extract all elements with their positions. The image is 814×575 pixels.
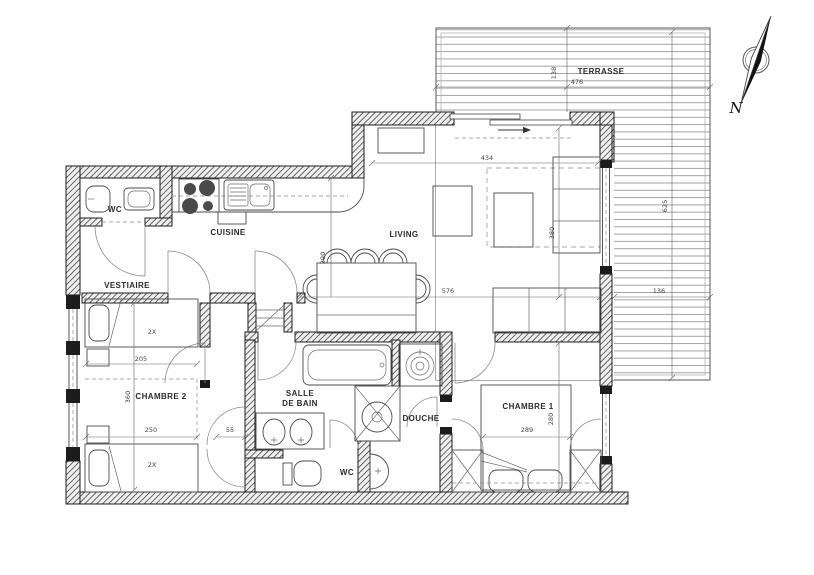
double-bed xyxy=(481,385,571,490)
wc-bottom xyxy=(283,461,321,486)
dim-living-height: 380 xyxy=(548,227,556,239)
closet-door xyxy=(255,251,297,293)
bed-1 xyxy=(85,299,198,347)
burner xyxy=(184,183,196,195)
wc-bottom-door xyxy=(330,420,358,448)
pillow xyxy=(89,305,109,341)
chambre2-door xyxy=(165,343,205,383)
hall-door-1 xyxy=(168,251,210,293)
burner xyxy=(182,198,198,214)
bed-2 xyxy=(85,444,198,492)
chair xyxy=(379,249,407,263)
dim-chambre2-depth: 360 xyxy=(124,391,132,403)
oven xyxy=(218,212,246,224)
north-label: N xyxy=(728,99,743,117)
shower-head xyxy=(417,349,423,355)
pillow xyxy=(489,470,523,492)
washer-drum xyxy=(362,402,392,432)
dim-passage: 55 xyxy=(226,426,234,434)
room-label-salle-2: DE BAIN xyxy=(282,399,318,408)
floor-plan-page: TERRASSE WC CUISINE LIVING VESTIAIRE CHA… xyxy=(0,0,814,575)
faucet xyxy=(265,187,268,190)
room-label-salle-1: SALLE xyxy=(286,389,314,398)
chair xyxy=(323,249,351,263)
dim-terrasse-depth: 138 xyxy=(550,67,558,79)
chair xyxy=(351,249,379,263)
bathtub xyxy=(303,345,391,385)
sideboard xyxy=(378,128,424,153)
wc-top-door xyxy=(95,226,145,276)
room-label-living: LIVING xyxy=(389,230,418,239)
room-label-wc-bottom: WC xyxy=(340,468,354,477)
dim-chambre1-width: 289 xyxy=(521,426,533,434)
drain xyxy=(380,363,384,367)
wardrobe-doors xyxy=(452,419,601,450)
room-label-cuisine: CUISINE xyxy=(210,228,246,237)
pillow xyxy=(528,470,562,492)
salle-de-bain xyxy=(256,345,400,449)
kitchen xyxy=(172,178,364,224)
dim-terrasse-width: 476 xyxy=(571,78,583,86)
dim-terrasse-side-height: 625 xyxy=(661,200,669,212)
dim-chambre2-bed: 205 xyxy=(135,355,147,363)
room-label-chambre2: CHAMBRE 2 xyxy=(135,392,186,401)
room-label-vestiaire: VESTIAIRE xyxy=(104,281,150,290)
room-label-wc-top: WC xyxy=(108,205,122,214)
dim-chambre2-width: 250 xyxy=(145,426,157,434)
room-label-douche: DOUCHE xyxy=(402,414,439,423)
nightstand xyxy=(87,426,109,443)
douche-sink xyxy=(370,454,389,489)
toilet-tank xyxy=(283,463,292,485)
north-compass: N xyxy=(728,16,771,117)
wc-top xyxy=(86,186,154,222)
dim-living-top: 434 xyxy=(481,154,493,162)
room-label-terrasse: TERRASSE xyxy=(578,67,625,76)
nightstand xyxy=(87,349,109,366)
vestiaire-closet xyxy=(256,305,284,331)
shower-drain xyxy=(416,362,424,370)
pillow xyxy=(89,450,109,486)
bed2-capacity: 2X xyxy=(148,461,157,469)
doors xyxy=(95,226,495,487)
dim-living-bottom: 576 xyxy=(442,287,454,295)
floor-plan-drawing: TERRASSE WC CUISINE LIVING VESTIAIRE CHA… xyxy=(0,0,814,575)
room-label-chambre1: CHAMBRE 1 xyxy=(502,402,553,411)
bed1-capacity: 2X xyxy=(148,328,157,336)
salle-de-bain-door xyxy=(258,342,296,380)
dim-terrasse-side-width: 136 xyxy=(653,287,665,295)
dining-table xyxy=(317,263,416,333)
burner xyxy=(199,180,215,196)
toilet-bowl xyxy=(294,461,321,486)
burner xyxy=(203,201,213,211)
chambre2-wardrobe-doors xyxy=(207,407,245,487)
dim-chambre1-depth: 280 xyxy=(547,413,555,425)
dim-dining-depth: 290 xyxy=(319,252,327,264)
chair xyxy=(416,275,430,303)
